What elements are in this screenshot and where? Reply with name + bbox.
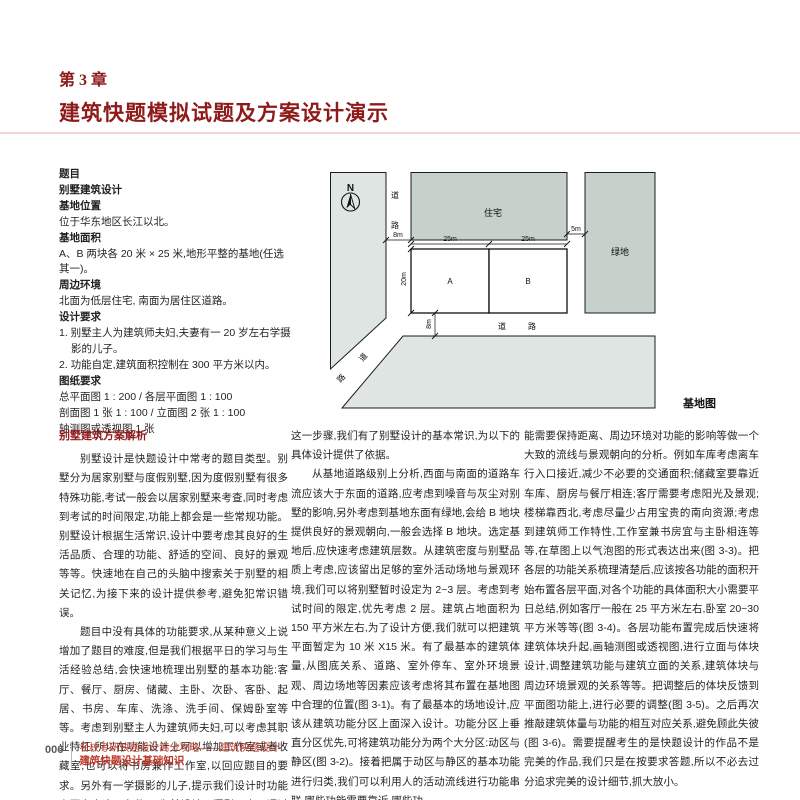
dim-bottom-road-width: 8m bbox=[426, 310, 438, 339]
brief-heading-topic: 题目 bbox=[59, 167, 293, 183]
brief-heading-surroundings: 周边环境 bbox=[59, 278, 293, 294]
brief-project-title: 别墅建筑设计 bbox=[59, 183, 293, 199]
left-block bbox=[331, 173, 387, 370]
footer-divider bbox=[71, 743, 72, 768]
brief-heading-area: 基地面积 bbox=[59, 231, 293, 247]
footer-section-title: 建筑快题设计基础知识 bbox=[79, 755, 279, 768]
svg-text:8m: 8m bbox=[393, 232, 403, 239]
brief-heading-requirements: 设计要求 bbox=[59, 310, 293, 326]
book-page: 第 3 章 建筑快题模拟试题及方案设计演示 题目 别墅建筑设计 基地位置 位于华… bbox=[0, 0, 800, 800]
label-road-bottom-char1: 道 bbox=[498, 321, 506, 331]
analysis-heading: 别墅建筑方案解析 bbox=[59, 427, 288, 446]
label-road-diag-char1: 道 bbox=[357, 351, 370, 364]
dim-left-road-width: 8m bbox=[383, 232, 414, 243]
site-plan-diagram: N 住宅 绿地 A B 道 路 道 路 道 路 8m bbox=[330, 172, 760, 422]
analysis-paragraph: 别墅设计是快题设计中常考的题目类型。别墅分为居家别墅与度假别墅,因为度假别墅有很… bbox=[59, 450, 288, 623]
svg-text:N: N bbox=[347, 183, 354, 194]
diagram-caption: 基地图 bbox=[682, 396, 716, 410]
brief-requirement-2: 2. 功能自定,建筑面积控制在 300 平方米以内。 bbox=[59, 358, 293, 374]
page-footer: 006 名校考研快题设计高分攻略——建筑快题设计 建筑快题设计基础知识 bbox=[45, 742, 279, 768]
header-divider bbox=[0, 132, 800, 134]
footer-titles: 名校考研快题设计高分攻略——建筑快题设计 建筑快题设计基础知识 bbox=[79, 742, 279, 768]
label-green-space: 绿地 bbox=[611, 246, 629, 257]
svg-text:25m: 25m bbox=[443, 236, 457, 243]
chapter-number: 第 3 章 bbox=[59, 66, 389, 90]
chapter-header: 第 3 章 建筑快题模拟试题及方案设计演示 bbox=[59, 66, 389, 127]
dim-right-road-width: 5m bbox=[564, 226, 588, 237]
svg-text:8m: 8m bbox=[426, 319, 433, 329]
label-road-diag-char2: 路 bbox=[335, 372, 348, 385]
analysis-paragraph: 从基地道路级别上分析,西面与南面的道路车流应该大于东面的道路,应考虑到噪音与灰尘… bbox=[291, 465, 520, 800]
brief-area-text: A、B 两块各 20 米 × 25 米,地形平整的基地(任选其一)。 bbox=[59, 247, 293, 279]
bottom-block bbox=[342, 336, 655, 408]
green-space-block bbox=[585, 173, 655, 314]
label-residential: 住宅 bbox=[484, 207, 502, 218]
brief-heading-drawings: 图纸要求 bbox=[59, 374, 293, 390]
analysis-paragraph: 题目中没有具体的功能要求,从某种意义上说增加了题目的难度,但是我们根据平日的学习… bbox=[59, 623, 288, 800]
svg-text:5m: 5m bbox=[571, 226, 581, 233]
label-road-bottom-char2: 路 bbox=[528, 321, 536, 331]
page-number: 006 bbox=[45, 742, 63, 756]
svg-text:20m: 20m bbox=[401, 272, 408, 286]
residential-block bbox=[411, 173, 567, 241]
analysis-paragraph: 这一步骤,我们有了别墅设计的基本常识,为以下的具体设计提供了依据。 bbox=[291, 427, 520, 465]
label-plot-b: B bbox=[525, 277, 530, 286]
analysis-column-3: 能需要保持距离、周边环境对功能的影响等做一个大致的流线与景观朝向的分析。例如车库… bbox=[524, 427, 759, 792]
analysis-column-2: 这一步骤,我们有了别墅设计的基本常识,为以下的具体设计提供了依据。 从基地道路级… bbox=[291, 427, 520, 800]
brief-drawing-req-1: 总平面图 1 : 200 / 各层平面图 1 : 100 bbox=[59, 390, 293, 406]
brief-location-text: 位于华东地区长江以北。 bbox=[59, 215, 293, 231]
brief-drawing-req-2: 剖面图 1 张 1 : 100 / 立面图 2 张 1 : 100 bbox=[59, 406, 293, 422]
brief-heading-location: 基地位置 bbox=[59, 199, 293, 215]
label-road-left-char2: 路 bbox=[391, 220, 399, 230]
chapter-title: 建筑快题模拟试题及方案设计演示 bbox=[59, 97, 389, 127]
label-road-left-char1: 道 bbox=[391, 190, 399, 200]
brief-requirement-1: 1. 别墅主人为建筑师夫妇,夫妻有一 20 岁左右学摄影的儿子。 bbox=[59, 326, 293, 358]
svg-text:25m: 25m bbox=[521, 236, 535, 243]
analysis-paragraph: 能需要保持距离、周边环境对功能的影响等做一个大致的流线与景观朝向的分析。例如车库… bbox=[524, 427, 759, 792]
footer-book-title: 名校考研快题设计高分攻略——建筑快题设计 bbox=[79, 742, 279, 755]
label-plot-a: A bbox=[447, 277, 453, 286]
task-brief: 题目 别墅建筑设计 基地位置 位于华东地区长江以北。 基地面积 A、B 两块各 … bbox=[59, 167, 293, 437]
brief-surroundings-text: 北面为低层住宅, 南面为居住区道路。 bbox=[59, 294, 293, 310]
